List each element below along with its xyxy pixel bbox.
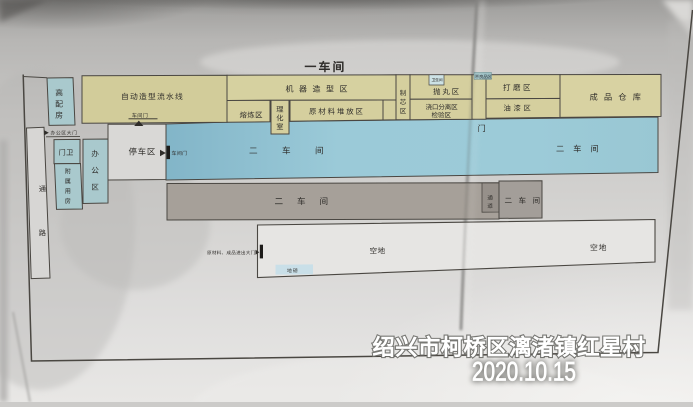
svg-text:2020.10.15: 2020.10.15 — [472, 357, 576, 387]
